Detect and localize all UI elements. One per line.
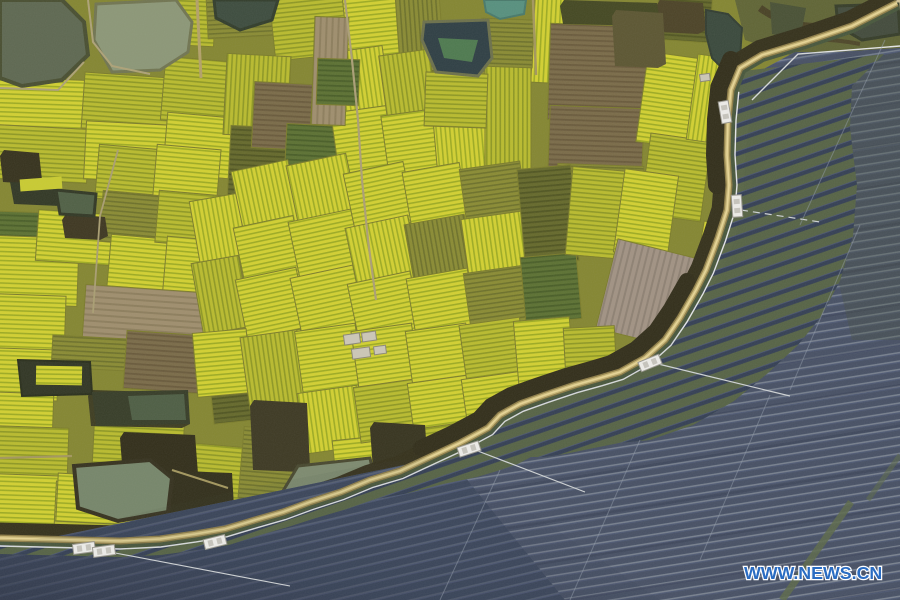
svg-text:WWW.NEWS.CN: WWW.NEWS.CN [744, 563, 882, 583]
